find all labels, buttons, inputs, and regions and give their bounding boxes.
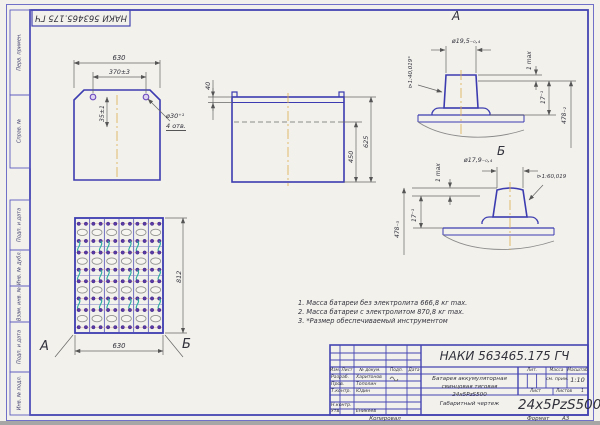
plan-view-label-a: А	[40, 340, 49, 353]
titleblock-scale-value: 1:10	[567, 377, 588, 384]
hole-count-label: 4 отв.	[166, 123, 186, 131]
titleblock-title-line: Батарея аккумуляторная	[421, 377, 518, 383]
detail-a-dim17: 17⁻¹	[541, 91, 547, 104]
titleblock-role: Н.контр.	[331, 404, 352, 409]
detail-a-label: А	[452, 10, 460, 22]
titleblock-role: Т.контр.	[331, 390, 351, 395]
top-view-linework	[74, 60, 170, 180]
detail-b-dim17: 17⁻¹	[412, 209, 418, 222]
note-line: 3. *Размер обеспечиваемый инструментом	[298, 317, 448, 325]
titleblock-title-line: Габаритный чертеж	[421, 402, 518, 408]
titleblock-role: Пров.	[331, 383, 344, 388]
titleblock-name: Еникеев	[356, 410, 376, 415]
titleblock-mass-value: см. прим.	[546, 378, 567, 383]
detail-a-diameter: ø19,5₋₀‚₄	[437, 39, 495, 45]
drawing-sheet: Перв. примен. Справ. № Подп. и дата Инв.…	[0, 0, 600, 425]
titleblock-col-sign: Подп.	[386, 369, 407, 373]
margin-label-podp-data1: Подп. и дата	[18, 208, 23, 242]
titleblock-role: Утв.	[331, 410, 341, 415]
detail-b-linework	[404, 167, 554, 255]
note-line: 2. Масса батареи с электролитом 870,8 кг…	[298, 308, 464, 316]
hole-diameter-label: ø30⁺¹	[166, 113, 184, 120]
titleblock-role: Разраб.	[331, 376, 349, 381]
dim-total-height: 625	[363, 136, 370, 148]
dim-plan-width: 630	[105, 343, 133, 350]
detail-a-dim478: 478₋₂	[562, 107, 568, 124]
titleblock-sheet-label: Лист	[518, 390, 553, 394]
detail-a-linework	[418, 46, 576, 148]
margin-label-podp-data2: Подп. и дата	[18, 330, 23, 364]
detail-b-taper-note: ⊳1:60,019	[537, 175, 566, 181]
titleblock-col-date: Дата	[407, 369, 421, 373]
margin-label-inv-podl: Инв. № подл.	[18, 376, 23, 411]
titleblock-designation: НАКИ 563465.175 ГЧ	[421, 350, 588, 362]
titleblock-name: Юдин	[356, 390, 370, 395]
dim-overall-width: 630	[105, 55, 133, 62]
titleblock-sheets-label: Листов	[556, 390, 572, 394]
titleblock-scale-label: Масштаб	[567, 369, 588, 373]
margin-label-perv-primen: Перв. примен.	[18, 33, 23, 71]
side-view-linework	[208, 80, 376, 186]
detail-b-diameter: ø17,9₋₀‚₄	[450, 158, 506, 164]
titleblock-name: Тополин	[356, 383, 376, 388]
titleblock-mass-label: Масса	[546, 369, 567, 373]
titleblock-name: Харитонов	[356, 376, 382, 381]
sheet-edge-shadow	[0, 421, 600, 425]
dim-plan-height: 812	[176, 271, 183, 283]
titleblock-title-line: свинцовая тяговая	[421, 385, 518, 391]
margin-label-sprav-no: Справ. №	[18, 119, 23, 143]
margin-label-inv-dubl: Инв. № дубл.	[18, 251, 23, 285]
titleblock-lit-label: Лит.	[518, 369, 546, 373]
margin-label-vzam-inv: Взам. инв. №	[18, 287, 23, 321]
titleblock-col-list: Лист	[340, 369, 354, 373]
titleblock-col-doc: № докум.	[354, 369, 386, 373]
top-stamp-designation: НАКИ 563465.175 ГЧ	[34, 13, 128, 22]
detail-a-taper-note: ⊳1:40,019°	[409, 56, 415, 88]
titleblock-sheets-value: 1	[581, 390, 584, 395]
dim-lip-height: 40	[205, 82, 212, 90]
detail-a-gap: 1 max	[527, 51, 533, 70]
detail-b-label: Б	[497, 145, 505, 157]
titleblock-col-izm: Изм.	[330, 369, 340, 373]
dim-hole-offset: 35±1	[100, 105, 106, 122]
dim-electrolyte-level: 450	[348, 151, 355, 163]
dim-hole-spacing: 370±3	[103, 70, 136, 76]
note-line: 1. Масса батареи без электролита 666,8 к…	[298, 299, 467, 307]
titleblock-code: 24x5PzS500	[518, 399, 588, 413]
detail-b-dim478: 478₋₃	[395, 221, 401, 238]
detail-b-gap: 1 max	[436, 163, 442, 182]
plan-view-label-b: Б	[182, 338, 191, 351]
titleblock-title-line: 24х5PzS500	[421, 393, 518, 399]
plan-view-linework	[55, 218, 187, 357]
